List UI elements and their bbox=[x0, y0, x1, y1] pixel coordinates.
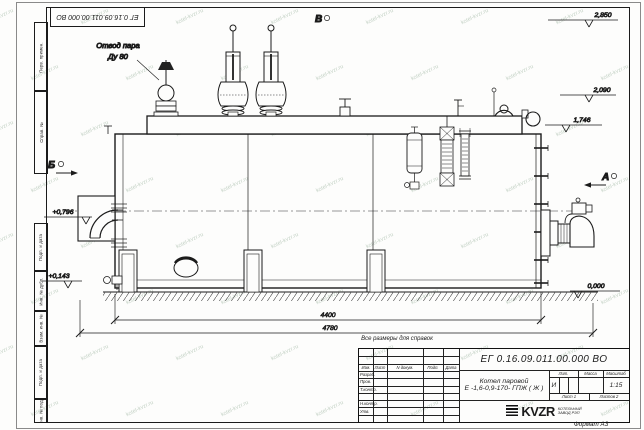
tb-scale-header: Масштаб bbox=[603, 370, 629, 377]
tb-col-izm: Изм. bbox=[359, 364, 373, 371]
doc-number-top: ЕГ 0.16.09.011.00.000 ВО bbox=[56, 14, 138, 21]
kvzr-logo-text: KVZR bbox=[521, 404, 554, 419]
tb-mass-header: Масса bbox=[578, 370, 603, 377]
stamp-sprav-no: Справ. № bbox=[34, 90, 48, 174]
reference-note: Все размеры для справок bbox=[352, 336, 442, 342]
stamp-perv-primen: Перв. примен. bbox=[34, 22, 48, 92]
tb-lit-header: Лит. bbox=[549, 370, 578, 377]
tb-lit-value: И bbox=[549, 377, 559, 393]
stamp-podp-data-2: Подп. и дата bbox=[34, 345, 48, 400]
stamp-inv-dubl: Инв. № дубл. bbox=[34, 270, 48, 312]
stamp-vzam-inv: Взам. инв. № bbox=[34, 310, 48, 347]
tb-col-podp: Подп. bbox=[423, 364, 443, 371]
tb-product-name: Котел паровой Е -1,6-0,9-170- ГПЖ ( Ж ) bbox=[459, 370, 549, 400]
tb-row-tkontr: Т.контр. bbox=[359, 386, 388, 393]
tb-row-prov: Пров. bbox=[359, 378, 388, 385]
stamp-podp-data-1: Подп. и дата bbox=[34, 223, 48, 272]
tb-col-list: Лист bbox=[373, 364, 387, 371]
tb-sheets: Листов 2 bbox=[589, 393, 629, 400]
tb-row-nkontr: Н.контр. bbox=[359, 400, 388, 407]
tb-logo-band: KVZR КОТЕЛЬНЫЙ ЗАВОД РЭП bbox=[459, 400, 629, 422]
kvzr-logo: KVZR КОТЕЛЬНЫЙ ЗАВОД РЭП bbox=[506, 404, 581, 419]
doc-number-top-box: ЕГ 0.16.09.011.00.000 ВО bbox=[50, 7, 145, 27]
tb-doc-number: ЕГ 0.16.09.011.00.000 ВО bbox=[459, 349, 629, 370]
tb-col-data: Дата bbox=[443, 364, 459, 371]
tb-row-razrab: Разраб. bbox=[359, 371, 388, 378]
kvzr-logo-tagline: КОТЕЛЬНЫЙ ЗАВОД РЭП bbox=[558, 407, 582, 415]
stamp-inv-podl: Инв. № подл. bbox=[34, 398, 48, 423]
tb-product-name-line2: Е -1,6-0,9-170- ГПЖ ( Ж ) bbox=[465, 385, 544, 392]
tb-row-utv: Утв. bbox=[359, 407, 388, 414]
format-label: Формат А3 bbox=[556, 421, 626, 428]
drawing-sheet: kotel-kvzr.rukotel-kvzr.rukotel-kvzr.ruk… bbox=[0, 0, 644, 430]
tb-sheet: Лист 1 bbox=[549, 393, 589, 400]
kvzr-logo-stripes-icon bbox=[506, 405, 518, 417]
tb-product-name-line1: Котел паровой bbox=[480, 378, 529, 385]
tb-scale-value: 1:15 bbox=[603, 377, 629, 393]
tb-col-ndoc: N докум. bbox=[387, 364, 423, 371]
title-block: Изм. Лист N докум. Подп. Дата Разраб. Пр… bbox=[358, 348, 630, 423]
